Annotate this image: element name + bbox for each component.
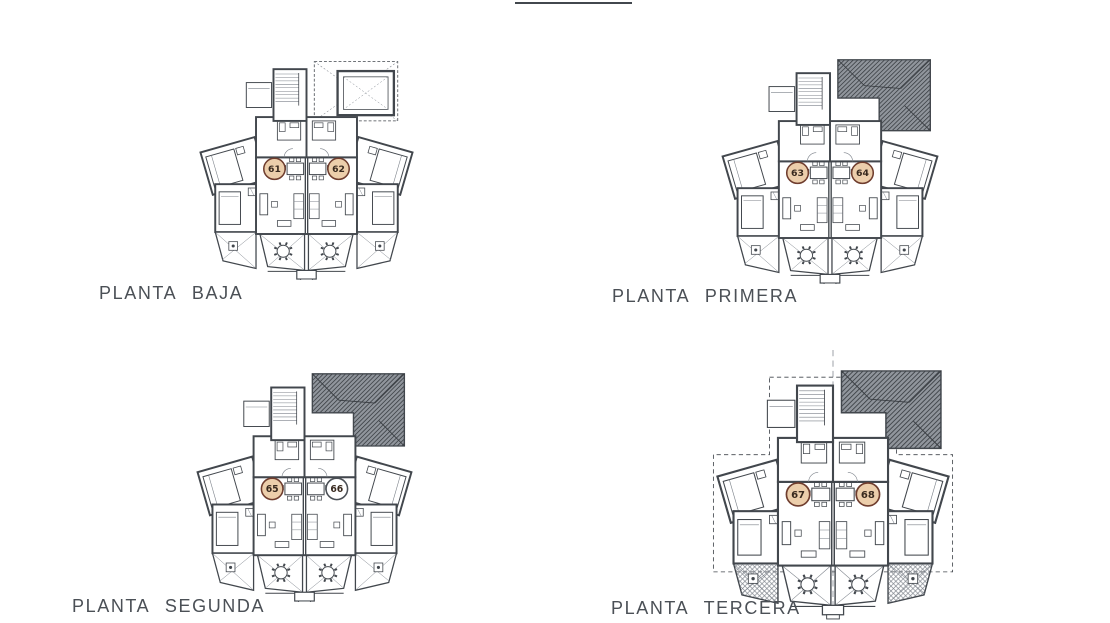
drawing-sheet: 61 62 63 64: [0, 0, 1110, 623]
unit-number: 68: [861, 490, 875, 501]
floor-plan-drawing-baja: 61 62: [190, 50, 423, 280]
unit-circle: 66: [326, 478, 348, 499]
unit-circle: 64: [852, 162, 874, 183]
floor-plan-drawing-tercera: 67 68: [706, 350, 960, 620]
floor-plan-baja: 61 62: [190, 50, 423, 280]
unit-circle: 61: [264, 158, 285, 179]
unit-circle: 65: [261, 478, 283, 499]
unit-circle: 68: [856, 483, 879, 506]
floor-plan-drawing-segunda: 65 66: [187, 368, 422, 602]
unit-number: 62: [332, 164, 345, 175]
floor-plan-drawing-primera: 63 64: [712, 54, 948, 284]
unit-circle: 63: [787, 162, 809, 183]
unit-circle: 67: [786, 483, 809, 506]
unit-number: 66: [330, 484, 343, 495]
plan-label-primera: PLANTA PRIMERA: [612, 286, 798, 307]
unit-number: 67: [791, 490, 805, 501]
plan-label-tercera: PLANTA TERCERA: [611, 598, 801, 619]
plan-label-baja: PLANTA BAJA: [99, 283, 243, 304]
plan-label-segunda: PLANTA SEGUNDA: [72, 596, 265, 617]
floor-plan-primera: 63 64: [712, 54, 948, 284]
floor-plan-tercera: 67 68: [706, 350, 960, 620]
unit-number: 65: [266, 484, 279, 495]
unit-number: 61: [268, 164, 281, 175]
unit-number: 63: [791, 168, 804, 179]
floor-plan-segunda: 65 66: [187, 368, 422, 602]
title-underline-rule: [515, 2, 632, 4]
unit-number: 64: [856, 168, 869, 179]
unit-circle: 62: [328, 158, 349, 179]
